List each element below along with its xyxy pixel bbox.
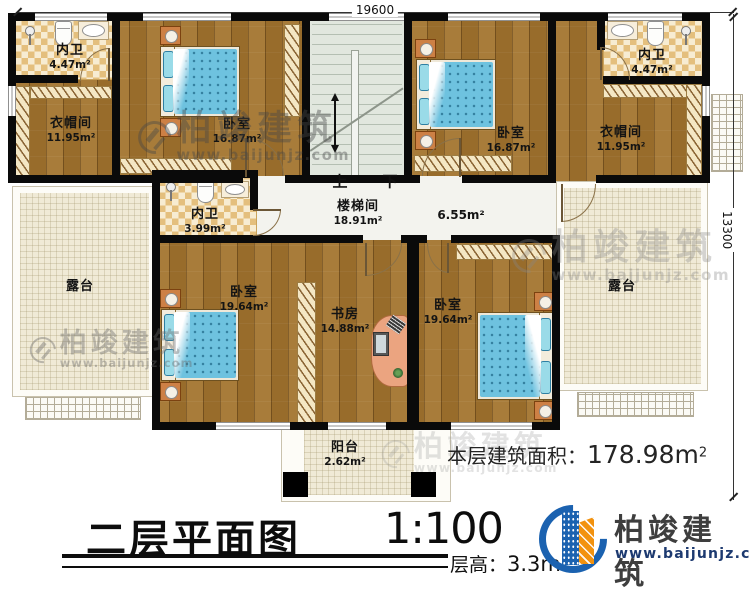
wall-mid-c (462, 175, 556, 183)
nightstand (160, 382, 181, 401)
window-top-4 (448, 13, 540, 21)
title-underline-thick (62, 554, 448, 558)
floor-plan-page: { "dimensions": { "top": "19600", "right… (0, 0, 750, 580)
wall-bottom-c (386, 422, 451, 430)
wardrobe-cloak-left-side (14, 86, 30, 176)
wall-bed-tr-right (548, 16, 556, 183)
railing-far-right (711, 94, 743, 172)
label-bath-top-left: 内卫 4.47m² (49, 43, 90, 71)
label-bed-top-right: 卧室 16.87m² (487, 126, 536, 154)
desk-plant (393, 368, 403, 378)
stair-arrow-up (331, 93, 339, 101)
bed-bottom-left (161, 309, 239, 381)
wardrobe-cloak-right-side (686, 84, 702, 176)
wardrobe-cloak-left-top (30, 86, 112, 99)
window-top-2 (143, 13, 231, 21)
wall-lower-top-b (401, 235, 427, 243)
pillow (540, 361, 551, 394)
wall-lower-top-a (152, 235, 363, 243)
window-left (8, 86, 16, 116)
wall-lower-right (552, 235, 560, 430)
wall-lower-left (152, 235, 160, 430)
dimension-line-right (733, 14, 734, 500)
stair-arrow-down (331, 145, 339, 153)
logo-building-blue-icon (562, 511, 579, 565)
baijun-logo-icon (536, 502, 610, 576)
label-bed-top-left: 卧室 16.87m² (213, 117, 262, 145)
door-leaf-bath-tr (600, 47, 602, 80)
logo-website-url: www.baijunjz.com (615, 546, 750, 562)
blanket-fold (525, 315, 541, 397)
blanket-fold (173, 49, 189, 114)
nightstand (160, 118, 181, 137)
label-balcony: 阳台 2.62m² (324, 440, 365, 468)
wardrobe-cloak-right-top (603, 84, 687, 98)
label-bed-bottom-left: 卧室 19.64m² (220, 285, 269, 313)
window-balcony-door (328, 422, 386, 430)
toilet (647, 21, 664, 46)
wall-bath-tl-divider (112, 18, 120, 183)
blanket-fold (429, 62, 445, 127)
label-stairs-down: 下 (382, 171, 397, 192)
stair-rail (351, 50, 359, 178)
label-stairs-up: 上 (332, 171, 347, 192)
wall-bottom-b (290, 422, 328, 430)
wardrobe-bed-tl-side (284, 24, 300, 117)
label-cloak-right: 衣帽间 11.95m² (597, 125, 646, 153)
logo-building-orange-icon (579, 517, 594, 564)
wardrobe-bed-br-top (456, 244, 553, 260)
wall-bottom-d (532, 422, 560, 430)
dimension-right-value: 13300 (720, 208, 734, 252)
sink (78, 21, 109, 40)
label-hallway-area: 6.55m² (437, 208, 484, 222)
nightstand (160, 289, 181, 308)
door-leaf-bath-tl (108, 48, 110, 81)
wall-bath-tr-stub (597, 18, 605, 50)
shower-head (25, 26, 35, 36)
wall-bath-mid-right (250, 178, 258, 210)
door-leaf-bath-mid (253, 209, 281, 211)
bed-top-left (160, 46, 240, 117)
label-stairwell: 楼梯间 18.91m² (334, 199, 383, 227)
pillow (540, 318, 551, 351)
bed-bottom-right (477, 312, 554, 400)
door-leaf-bed-tr (459, 138, 461, 177)
title-underline-thin (62, 566, 448, 568)
balcony-column-right (411, 472, 436, 497)
drawing-scale: 1:100 (384, 504, 503, 554)
label-cloak-left: 衣帽间 11.95m² (47, 116, 96, 144)
wall-stair-left (302, 16, 310, 183)
wall-stair-right (404, 16, 412, 183)
baijun-logo: 柏竣建筑 www.baijunjz.com (536, 500, 748, 578)
sink (607, 21, 638, 40)
label-terrace-left: 露台 (66, 279, 94, 295)
window-right (702, 86, 710, 116)
door-leaf-bed-bl (365, 243, 367, 276)
dimension-top-value: 19600 (352, 3, 398, 17)
label-bath-top-right: 内卫 4.47m² (631, 48, 672, 76)
balcony-column-left (283, 472, 308, 497)
sink (221, 181, 249, 198)
wall-lower-top-c (451, 235, 560, 243)
wall-bath-mid-top (152, 170, 258, 178)
bed-top-right (416, 59, 496, 130)
shower-head (166, 182, 176, 192)
shower-head (681, 26, 691, 36)
nightstand (415, 131, 436, 150)
label-study: 书房 14.88m² (321, 307, 370, 335)
wall-bottom-a (152, 422, 216, 430)
door-leaf-terrace-right (561, 184, 563, 222)
wardrobe-bed-bl-study (297, 282, 316, 423)
label-terrace-right: 露台 (608, 279, 636, 295)
wall-mid-b (285, 175, 420, 183)
window-bottom-2 (451, 422, 532, 430)
railing-right (577, 392, 694, 417)
wall-bath-tl-bottom (14, 75, 78, 83)
nightstand (415, 39, 436, 58)
wall-mid-d (596, 175, 710, 183)
window-bottom-1 (216, 422, 290, 430)
nightstand (160, 26, 181, 45)
floor-area-superscript: 2 (699, 446, 707, 461)
window-top-1 (35, 13, 107, 21)
wall-bath-mid-left (152, 178, 160, 235)
door-leaf-bed-br (447, 243, 449, 273)
stair-arrow-line (334, 100, 336, 146)
label-bed-bottom-right: 卧室 19.64m² (424, 298, 473, 326)
computer-monitor (373, 332, 389, 356)
railing-left (25, 397, 141, 420)
floor-area-text: 本层建筑面积：178.98m2 (447, 440, 707, 469)
label-bath-middle: 内卫 3.99m² (184, 207, 225, 235)
window-top-5 (608, 13, 682, 21)
blanket-fold (174, 312, 190, 378)
wall-study-divider (407, 243, 419, 430)
